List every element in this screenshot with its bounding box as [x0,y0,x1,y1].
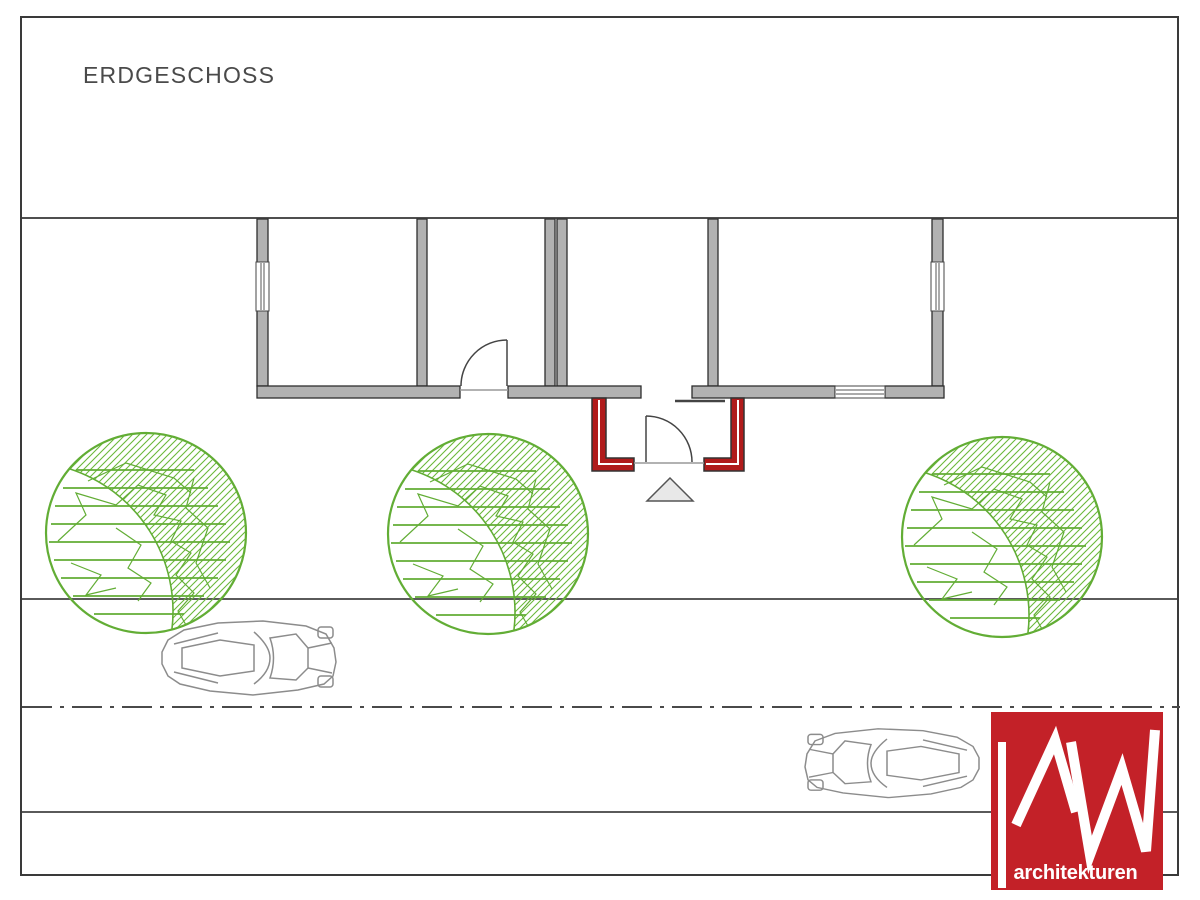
wall-expansion-right [557,219,567,386]
wall-bottom-4 [885,386,944,398]
car-1 [162,621,336,695]
tree-2 [388,434,588,634]
tree-3 [902,437,1102,637]
logo-text: architekturen [991,862,1160,885]
car-2 [805,729,979,798]
building-walls [257,219,944,398]
logo-mw-architekturen: architekturen [991,712,1163,890]
wall-interior-2 [708,219,718,386]
window-left [256,262,269,311]
entrance-door [646,416,692,462]
wall-bottom-1 [257,386,460,398]
tree-1 [46,433,246,633]
floor-plan-sheet: ERDGESCHOSS architekturen [0,0,1200,900]
door-interior [460,340,508,390]
wall-interior-1 [417,219,427,386]
page-title: ERDGESCHOSS [83,62,275,89]
entrance-marker-triangle [647,478,693,501]
wall-expansion-left [545,219,555,386]
entrance-vestibule [592,398,744,501]
window-right [931,262,944,311]
wall-bottom-3 [692,386,835,398]
wall-bottom-2 [508,386,641,398]
window-bottom [835,386,885,398]
